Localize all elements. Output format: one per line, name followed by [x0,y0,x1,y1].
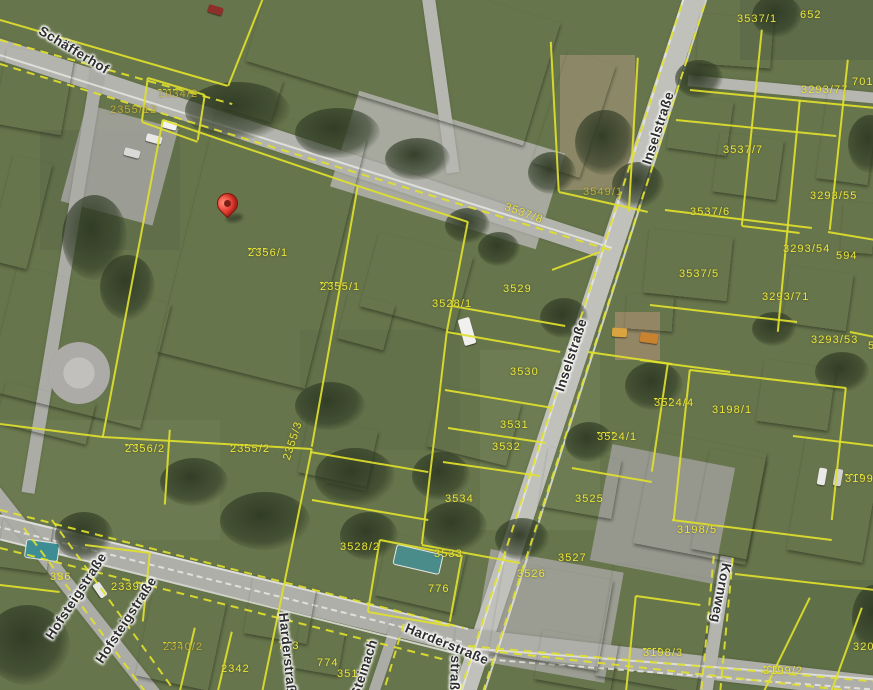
labels-layer: 1034/22355/123537/16523293/777012356/123… [0,0,873,690]
street-label: straße [447,655,463,690]
map-marker[interactable] [215,192,243,224]
parcel-tick-marks [125,444,143,445]
street-label: Hofsteigstraße [42,550,109,642]
street-label: Harderstraße [403,620,491,667]
marker-dot [224,200,231,207]
parcel-tick-marks [158,89,176,90]
street-label: Schäfferhof [36,23,112,77]
parcel-tick-marks [597,432,615,433]
aerial-map-viewport[interactable]: 1034/22355/123537/16523293/777012356/123… [0,0,873,690]
parcel-tick-marks [763,666,781,667]
parcel-tick-marks [248,248,266,249]
parcel-tick-marks [230,444,248,445]
street-label: Inselstraße [639,90,677,167]
street-label: Inselstraße [552,317,590,394]
parcel-tick-marks [654,398,672,399]
parcel-tick-marks [320,282,338,283]
parcel-tick-marks [845,474,863,475]
street-label: Kornweg [708,562,734,624]
street-label: Steinach [348,637,381,690]
parcel-tick-marks [643,648,661,649]
parcel-tick-marks [163,642,181,643]
